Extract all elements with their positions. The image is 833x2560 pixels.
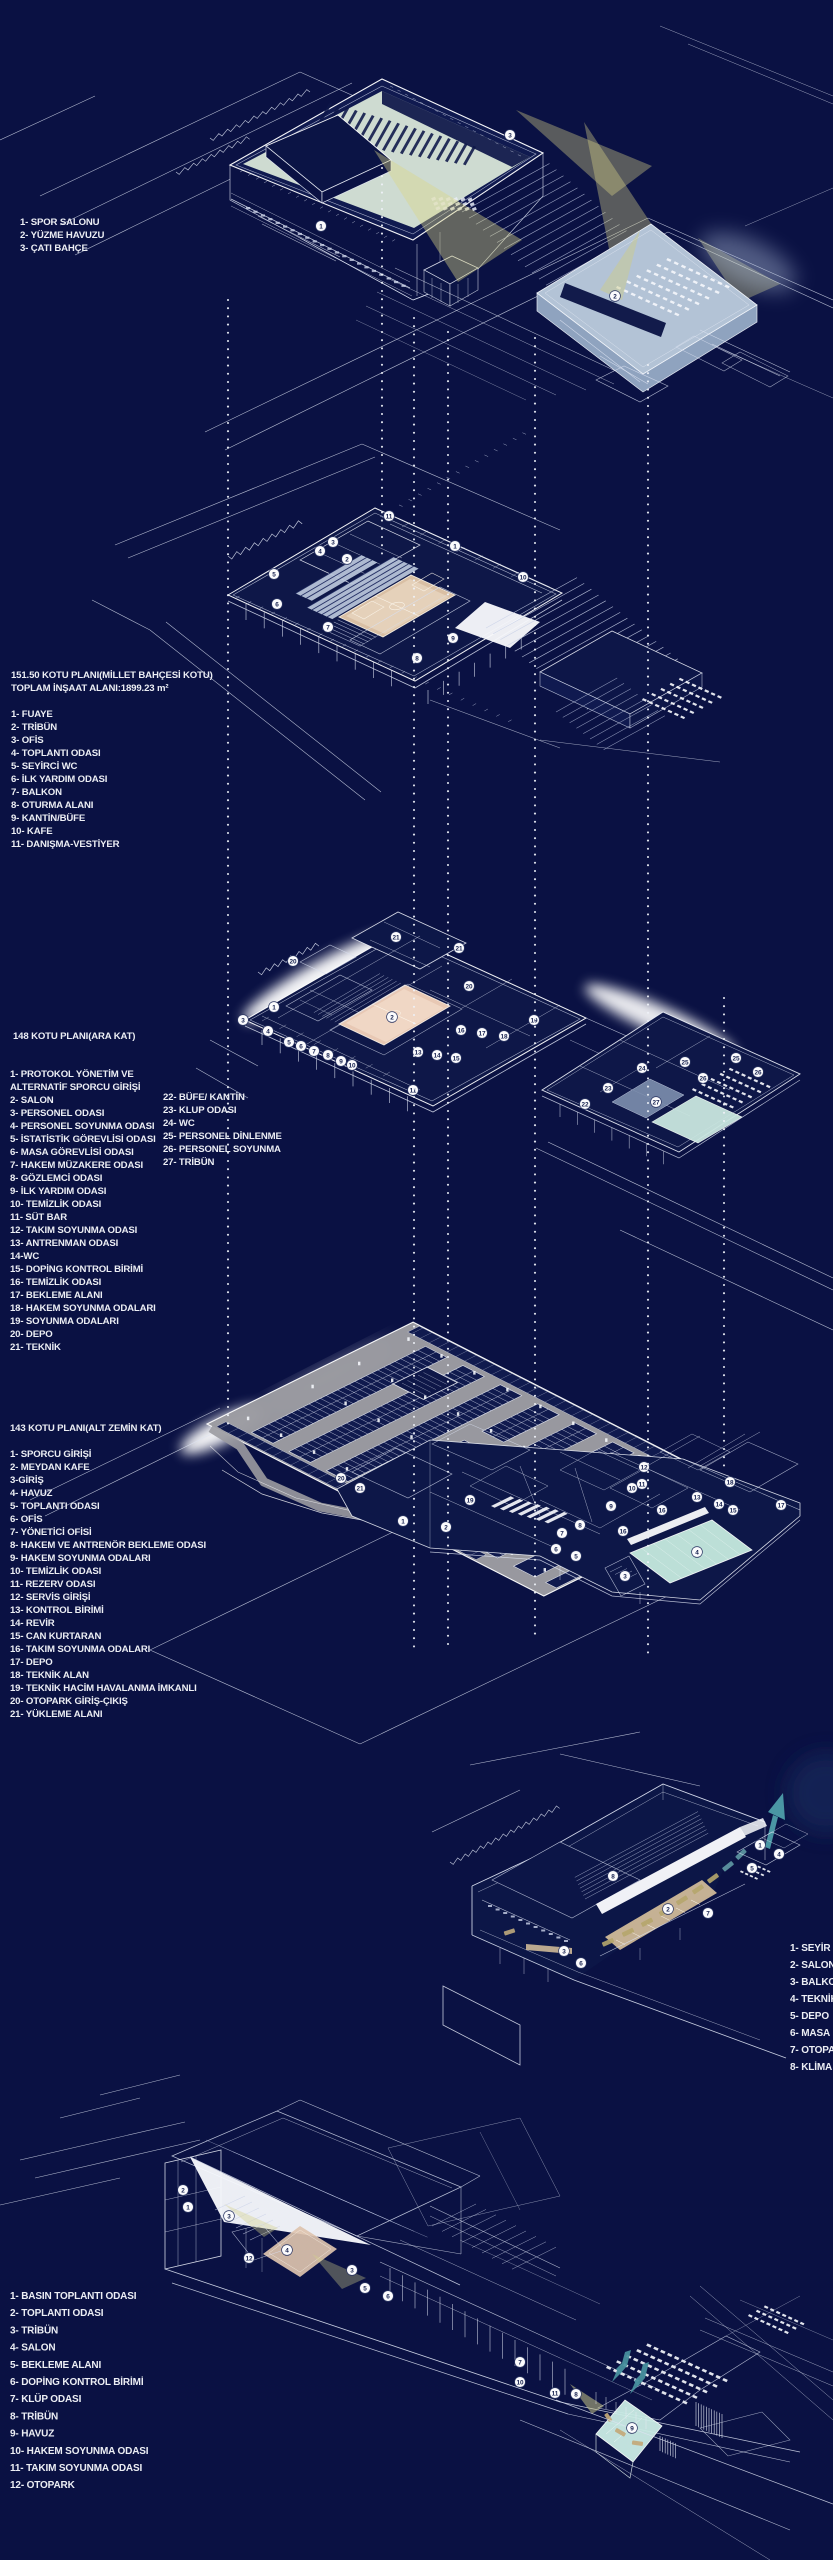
- svg-text:4- TEKNİK: 4- TEKNİK: [790, 1992, 833, 2005]
- svg-text:4- TOPLANTI ODASI: 4- TOPLANTI ODASI: [11, 748, 101, 759]
- svg-text:25: 25: [681, 1059, 689, 1066]
- svg-text:14: 14: [433, 1052, 441, 1059]
- svg-text:4- PERSONEL SOYUNMA ODASI: 4- PERSONEL SOYUNMA ODASI: [10, 1121, 155, 1132]
- svg-text:26: 26: [699, 1075, 707, 1082]
- svg-text:2- MEYDAN KAFE: 2- MEYDAN KAFE: [10, 1462, 90, 1473]
- svg-text:23: 23: [604, 1085, 612, 1092]
- svg-text:10: 10: [516, 2379, 524, 2386]
- svg-text:1: 1: [319, 223, 323, 230]
- svg-text:8: 8: [578, 1522, 582, 1529]
- svg-text:6: 6: [554, 1546, 558, 1553]
- svg-text:8- OTURMA ALANI: 8- OTURMA ALANI: [11, 800, 94, 811]
- svg-text:3- TRİBÜN: 3- TRİBÜN: [10, 2323, 58, 2336]
- svg-text:26: 26: [754, 1069, 762, 1076]
- svg-text:9: 9: [451, 635, 455, 642]
- svg-text:8: 8: [415, 655, 419, 662]
- svg-text:4: 4: [695, 1549, 699, 1556]
- svg-text:3: 3: [562, 1948, 566, 1955]
- svg-text:1: 1: [401, 1518, 405, 1525]
- svg-text:13: 13: [414, 1049, 422, 1056]
- svg-text:1- SPOR SALONU: 1- SPOR SALONU: [20, 217, 100, 228]
- svg-text:2- TOPLANTI ODASI: 2- TOPLANTI ODASI: [10, 2308, 104, 2319]
- svg-text:15- DOPİNG KONTROL BİRİMİ: 15- DOPİNG KONTROL BİRİMİ: [10, 1264, 144, 1275]
- svg-text:19: 19: [466, 1497, 474, 1504]
- svg-text:4: 4: [285, 2247, 289, 2254]
- svg-text:10- TEMİZLİK ODASI: 10- TEMİZLİK ODASI: [10, 1566, 102, 1577]
- svg-text:3- BALKON: 3- BALKON: [790, 1977, 833, 1988]
- svg-text:1- FUAYE: 1- FUAYE: [11, 709, 53, 720]
- svg-text:3: 3: [227, 2213, 231, 2220]
- svg-text:7- BALKON: 7- BALKON: [11, 787, 62, 798]
- svg-text:7- OTOPA: 7- OTOPA: [790, 2045, 833, 2056]
- svg-text:9: 9: [339, 1058, 343, 1065]
- svg-text:5- BEKLEME ALANI: 5- BEKLEME ALANI: [10, 2360, 101, 2371]
- svg-text:9- KANTİN/BÜFE: 9- KANTİN/BÜFE: [11, 813, 86, 824]
- svg-text:20: 20: [337, 1475, 345, 1482]
- svg-text:14: 14: [715, 1501, 723, 1508]
- svg-text:2- TRİBÜN: 2- TRİBÜN: [11, 722, 57, 733]
- svg-text:5: 5: [363, 2285, 367, 2292]
- svg-text:7: 7: [312, 1048, 316, 1055]
- svg-text:3: 3: [508, 132, 512, 139]
- svg-text:16: 16: [658, 1507, 666, 1514]
- svg-text:3: 3: [623, 1573, 627, 1580]
- svg-text:6: 6: [299, 1043, 303, 1050]
- svg-text:22- BÜFE/ KANTİN: 22- BÜFE/ KANTİN: [163, 1092, 245, 1103]
- svg-text:14-WC: 14-WC: [10, 1251, 39, 1262]
- svg-text:12- OTOPARK: 12- OTOPARK: [10, 2480, 76, 2491]
- svg-text:143 KOTU PLANI(ALT ZEMİN KAT): 143 KOTU PLANI(ALT ZEMİN KAT): [10, 1423, 161, 1434]
- svg-text:10: 10: [628, 1485, 636, 1492]
- svg-text:5- SEYİRCİ WC: 5- SEYİRCİ WC: [11, 761, 78, 772]
- svg-text:10- TEMİZLİK ODASI: 10- TEMİZLİK ODASI: [10, 1199, 102, 1210]
- svg-text:3-GİRİŞ: 3-GİRİŞ: [10, 1475, 44, 1486]
- svg-text:11- REZERV ODASI: 11- REZERV ODASI: [10, 1579, 96, 1590]
- svg-text:3- OFİS: 3- OFİS: [11, 735, 44, 746]
- svg-text:16- TAKIM SOYUNMA ODALARI: 16- TAKIM SOYUNMA ODALARI: [10, 1644, 151, 1655]
- svg-text:8: 8: [326, 1052, 330, 1059]
- svg-text:5: 5: [574, 1553, 578, 1560]
- svg-text:10: 10: [519, 574, 527, 581]
- svg-text:21- TEKNİK: 21- TEKNİK: [10, 1342, 61, 1353]
- svg-text:2- YÜZME HAVUZU: 2- YÜZME HAVUZU: [20, 230, 104, 241]
- svg-text:7: 7: [560, 1530, 564, 1537]
- svg-text:6- MASA: 6- MASA: [790, 2028, 830, 2039]
- svg-text:12: 12: [640, 1464, 648, 1471]
- svg-text:3: 3: [241, 1017, 245, 1024]
- svg-text:8: 8: [611, 1873, 615, 1880]
- svg-text:15: 15: [452, 1055, 460, 1062]
- svg-text:1: 1: [453, 543, 457, 550]
- svg-text:3: 3: [331, 539, 335, 546]
- svg-text:2: 2: [390, 1014, 394, 1021]
- svg-text:17: 17: [478, 1030, 486, 1037]
- svg-text:1- SPORCU GİRİŞİ: 1- SPORCU GİRİŞİ: [10, 1449, 92, 1460]
- svg-text:6: 6: [386, 2293, 390, 2300]
- svg-text:15: 15: [729, 1507, 737, 1514]
- svg-text:27: 27: [652, 1099, 660, 1106]
- svg-text:19- SOYUNMA ODALARI: 19- SOYUNMA ODALARI: [10, 1316, 119, 1327]
- svg-text:9- İLK YARDIM ODASI: 9- İLK YARDIM ODASI: [10, 1186, 107, 1197]
- svg-text:14- REVİR: 14- REVİR: [10, 1618, 55, 1629]
- svg-text:7- KLÜP ODASI: 7- KLÜP ODASI: [10, 2392, 82, 2405]
- svg-text:4: 4: [266, 1028, 270, 1035]
- svg-text:12- SERVİS GİRİŞİ: 12- SERVİS GİRİŞİ: [10, 1592, 91, 1603]
- svg-text:13- ANTRENMAN ODASI: 13- ANTRENMAN ODASI: [10, 1238, 119, 1249]
- svg-text:4- SALON: 4- SALON: [10, 2343, 55, 2354]
- svg-text:25- PERSONEL DİNLENME: 25- PERSONEL DİNLENME: [163, 1131, 282, 1142]
- svg-text:20- DEPO: 20- DEPO: [10, 1329, 53, 1340]
- svg-text:2: 2: [613, 293, 617, 300]
- svg-text:5- DEPO: 5- DEPO: [790, 2011, 829, 2022]
- svg-text:8- GÖZLEMCİ ODASI: 8- GÖZLEMCİ ODASI: [10, 1173, 103, 1184]
- svg-text:5: 5: [272, 571, 276, 578]
- svg-text:20: 20: [465, 983, 473, 990]
- svg-text:5: 5: [750, 1865, 754, 1872]
- svg-text:1: 1: [186, 2204, 190, 2211]
- svg-text:1- BASIN TOPLANTI ODASI: 1- BASIN TOPLANTI ODASI: [10, 2291, 137, 2302]
- svg-text:9: 9: [609, 1503, 613, 1510]
- svg-text:6- DOPİNG KONTROL BİRİMİ: 6- DOPİNG KONTROL BİRİMİ: [10, 2375, 144, 2388]
- svg-text:27- TRİBÜN: 27- TRİBÜN: [163, 1157, 214, 1168]
- svg-text:3- PERSONEL ODASI: 3- PERSONEL ODASI: [10, 1108, 105, 1119]
- svg-text:6- İLK YARDIM ODASI: 6- İLK YARDIM ODASI: [11, 774, 108, 785]
- svg-text:20: 20: [289, 958, 297, 965]
- svg-text:1: 1: [758, 1842, 762, 1849]
- svg-text:10- HAKEM SOYUNMA ODASI: 10- HAKEM SOYUNMA ODASI: [10, 2446, 149, 2457]
- svg-text:1- SEYİR: 1- SEYİR: [790, 1941, 831, 1954]
- svg-text:13- KONTROL BİRİMİ: 13- KONTROL BİRİMİ: [10, 1605, 104, 1616]
- svg-text:25: 25: [732, 1055, 740, 1062]
- svg-text:16- TEMİZLİK ODASI: 16- TEMİZLİK ODASI: [10, 1277, 102, 1288]
- svg-text:5- TOPLANTI ODASI: 5- TOPLANTI ODASI: [10, 1501, 100, 1512]
- svg-text:148 KOTU PLANI(ARA KAT): 148 KOTU PLANI(ARA KAT): [13, 1031, 135, 1042]
- svg-text:6- OFİS: 6- OFİS: [10, 1514, 43, 1525]
- svg-text:21: 21: [455, 945, 463, 952]
- svg-text:17- DEPO: 17- DEPO: [10, 1657, 53, 1668]
- svg-text:18- HAKEM SOYUNMA ODALARI: 18- HAKEM SOYUNMA ODALARI: [10, 1303, 156, 1314]
- svg-text:11- SÜT BAR: 11- SÜT BAR: [10, 1212, 67, 1223]
- svg-text:TOPLAM İNŞAAT ALANI:1899.23 m²: TOPLAM İNŞAAT ALANI:1899.23 m²: [11, 683, 168, 694]
- svg-text:2: 2: [345, 556, 349, 563]
- svg-text:1: 1: [272, 1004, 276, 1011]
- svg-text:21: 21: [392, 934, 400, 941]
- svg-text:8- KLİMA: 8- KLİMA: [790, 2060, 832, 2073]
- svg-text:8- TRİBÜN: 8- TRİBÜN: [10, 2409, 58, 2422]
- svg-text:21- YÜKLEME ALANI: 21- YÜKLEME ALANI: [10, 1709, 103, 1720]
- svg-text:8: 8: [574, 2391, 578, 2398]
- svg-text:ALTERNATİF SPORCU GİRİŞİ: ALTERNATİF SPORCU GİRİŞİ: [10, 1082, 141, 1093]
- svg-text:2: 2: [666, 1906, 670, 1913]
- svg-text:17- BEKLEME ALANI: 17- BEKLEME ALANI: [10, 1290, 103, 1301]
- svg-text:11- DANIŞMA-VESTİYER: 11- DANIŞMA-VESTİYER: [11, 839, 120, 850]
- svg-text:11: 11: [386, 513, 393, 520]
- svg-text:21: 21: [356, 1485, 364, 1492]
- svg-text:7: 7: [706, 1910, 710, 1917]
- svg-text:5: 5: [287, 1039, 291, 1046]
- svg-text:9- HAKEM SOYUNMA ODALARI: 9- HAKEM SOYUNMA ODALARI: [10, 1553, 151, 1564]
- svg-text:6- MASA GÖREVLİSİ ODASI: 6- MASA GÖREVLİSİ ODASI: [10, 1147, 134, 1158]
- svg-text:24- WC: 24- WC: [163, 1118, 195, 1129]
- svg-text:11: 11: [639, 1481, 646, 1488]
- svg-text:16: 16: [457, 1027, 465, 1034]
- svg-text:7: 7: [326, 624, 330, 631]
- svg-text:3: 3: [350, 2267, 354, 2274]
- svg-text:18: 18: [500, 1033, 508, 1040]
- svg-text:6: 6: [579, 1960, 583, 1967]
- svg-text:23- KLUP ODASI: 23- KLUP ODASI: [163, 1105, 237, 1116]
- svg-text:6: 6: [275, 601, 279, 608]
- svg-text:2- SALON: 2- SALON: [790, 1960, 833, 1971]
- svg-text:13: 13: [693, 1494, 701, 1501]
- svg-text:4: 4: [777, 1851, 781, 1858]
- svg-text:16: 16: [619, 1528, 627, 1535]
- svg-text:1- PROTOKOL YÖNETİM VE: 1- PROTOKOL YÖNETİM VE: [10, 1069, 134, 1080]
- svg-text:17: 17: [777, 1502, 785, 1509]
- svg-text:7- HAKEM MÜZAKERE ODASI: 7- HAKEM MÜZAKERE ODASI: [10, 1160, 143, 1171]
- svg-text:3- ÇATI BAHÇE: 3- ÇATI BAHÇE: [20, 243, 88, 254]
- svg-text:4: 4: [318, 548, 322, 555]
- svg-text:22: 22: [581, 1101, 589, 1108]
- svg-text:20- OTOPARK GİRİŞ-ÇIKIŞ: 20- OTOPARK GİRİŞ-ÇIKIŞ: [10, 1696, 128, 1707]
- svg-text:15- CAN KURTARAN: 15- CAN KURTARAN: [10, 1631, 101, 1642]
- svg-text:24: 24: [638, 1065, 646, 1072]
- svg-text:4- HAVUZ: 4- HAVUZ: [10, 1488, 53, 1499]
- svg-text:9- HAVUZ: 9- HAVUZ: [10, 2429, 54, 2440]
- svg-text:7: 7: [518, 2359, 522, 2366]
- svg-text:7- YÖNETİCİ OFİSİ: 7- YÖNETİCİ OFİSİ: [10, 1527, 92, 1538]
- svg-text:151.50 KOTU PLANI(MİLLET BAHÇE: 151.50 KOTU PLANI(MİLLET BAHÇESİ KOTU): [11, 670, 213, 681]
- svg-text:9: 9: [630, 2425, 634, 2432]
- svg-text:8- HAKEM VE ANTRENÖR BEKLEME O: 8- HAKEM VE ANTRENÖR BEKLEME ODASI: [10, 1540, 207, 1551]
- svg-text:10- KAFE: 10- KAFE: [11, 826, 53, 837]
- svg-text:2: 2: [181, 2187, 185, 2194]
- svg-text:2- SALON: 2- SALON: [10, 1095, 54, 1106]
- svg-text:18- TEKNİK ALAN: 18- TEKNİK ALAN: [10, 1670, 89, 1681]
- svg-text:12: 12: [245, 2255, 253, 2262]
- svg-text:26- PERSONEL SOYUNMA: 26- PERSONEL SOYUNMA: [163, 1144, 281, 1155]
- svg-text:18: 18: [726, 1479, 734, 1486]
- svg-text:19- TEKNİK HACİM HAVALANMA İMK: 19- TEKNİK HACİM HAVALANMA İMKANLI: [10, 1683, 197, 1694]
- svg-text:11: 11: [552, 2390, 559, 2397]
- svg-text:11- TAKIM SOYUNMA ODASI: 11- TAKIM SOYUNMA ODASI: [10, 2463, 142, 2474]
- svg-text:5- İSTATİSTİK GÖREVLİSİ ODASI: 5- İSTATİSTİK GÖREVLİSİ ODASI: [10, 1134, 156, 1145]
- svg-text:10: 10: [348, 1062, 356, 1069]
- svg-text:12- TAKIM SOYUNMA ODASI: 12- TAKIM SOYUNMA ODASI: [10, 1225, 138, 1236]
- svg-text:2: 2: [444, 1524, 448, 1531]
